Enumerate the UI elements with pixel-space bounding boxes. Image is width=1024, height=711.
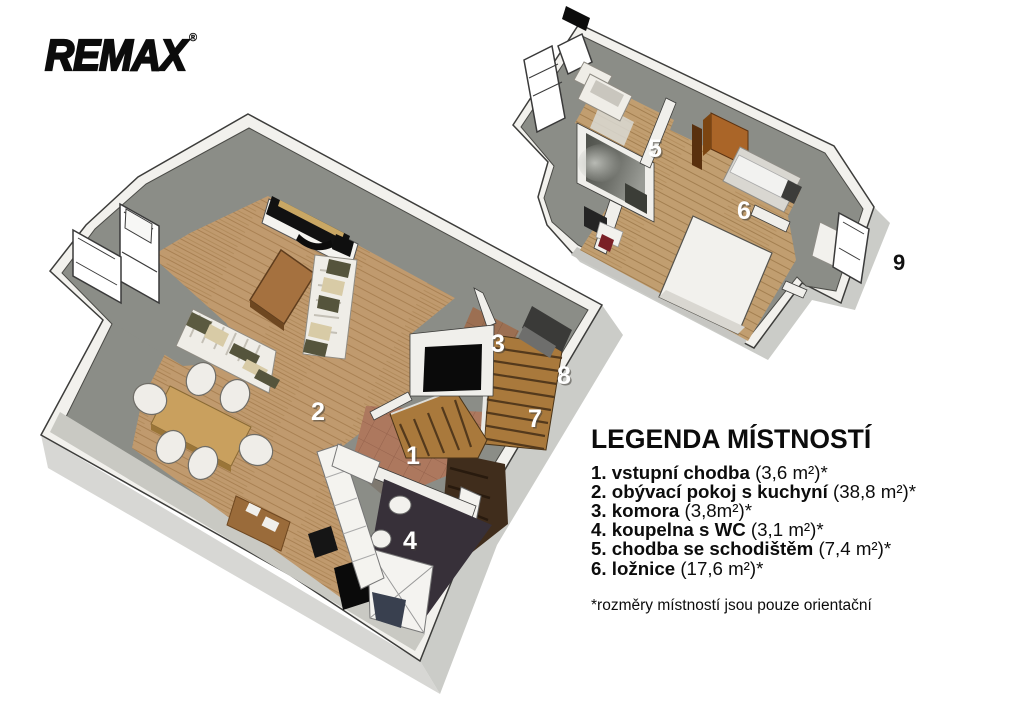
- svg-text:4. koupelna s WC (3,1 m²)*: 4. koupelna s WC (3,1 m²)*: [591, 519, 824, 540]
- svg-text:3. komora (3,8m²)*: 3. komora (3,8m²)*: [591, 500, 752, 521]
- svg-text:5: 5: [648, 135, 662, 163]
- svg-text:®: ®: [189, 32, 197, 44]
- svg-text:9: 9: [893, 250, 905, 275]
- svg-text:4: 4: [403, 527, 417, 555]
- svg-text:3: 3: [491, 330, 505, 358]
- svg-text:*rozměry místností jsou pouze: *rozměry místností jsou pouze orientační: [591, 597, 873, 614]
- svg-text:REMAX: REMAX: [45, 31, 189, 80]
- svg-text:2. obývací pokoj s kuchyní (38: 2. obývací pokoj s kuchyní (38,8 m²)*: [591, 481, 916, 502]
- svg-text:2: 2: [311, 398, 325, 426]
- svg-text:1. vstupní chodba (3,6 m²)*: 1. vstupní chodba (3,6 m²)*: [591, 462, 828, 483]
- svg-text:6: 6: [737, 197, 751, 225]
- svg-text:1: 1: [406, 442, 420, 470]
- svg-text:7: 7: [528, 405, 542, 433]
- svg-text:6. ložnice (17,6 m²)*: 6. ložnice (17,6 m²)*: [591, 558, 763, 579]
- svg-text:LEGENDA MÍSTNOSTÍ: LEGENDA MÍSTNOSTÍ: [591, 424, 872, 454]
- svg-text:5. chodba se schodištěm (7,4 m: 5. chodba se schodištěm (7,4 m²)*: [591, 538, 891, 559]
- svg-text:8: 8: [557, 362, 571, 390]
